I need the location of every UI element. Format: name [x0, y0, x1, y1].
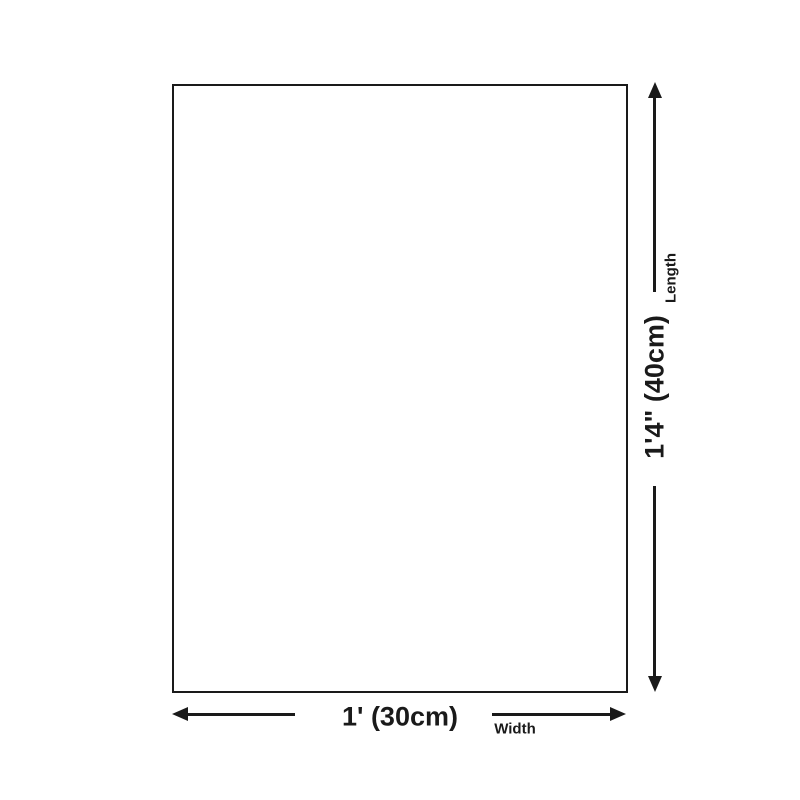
length-dimension-value: 1'4" (40cm): [642, 315, 669, 459]
width-dimension-value: 1' (30cm): [342, 704, 458, 731]
width-axis-label: Width: [494, 722, 536, 737]
length-dimension-line-lower: [653, 486, 656, 678]
arrow-right-icon: [610, 707, 626, 721]
length-dimension-line-upper: [653, 96, 656, 292]
length-axis-label: Length: [664, 253, 679, 303]
width-dimension-line-left: [186, 713, 295, 716]
arrow-down-icon: [648, 676, 662, 692]
product-size-diagram: Length 1'4" (40cm) 1' (30cm) Width: [0, 0, 800, 800]
width-dimension-line-right: [492, 713, 612, 716]
product-outline-rectangle: [172, 84, 628, 693]
